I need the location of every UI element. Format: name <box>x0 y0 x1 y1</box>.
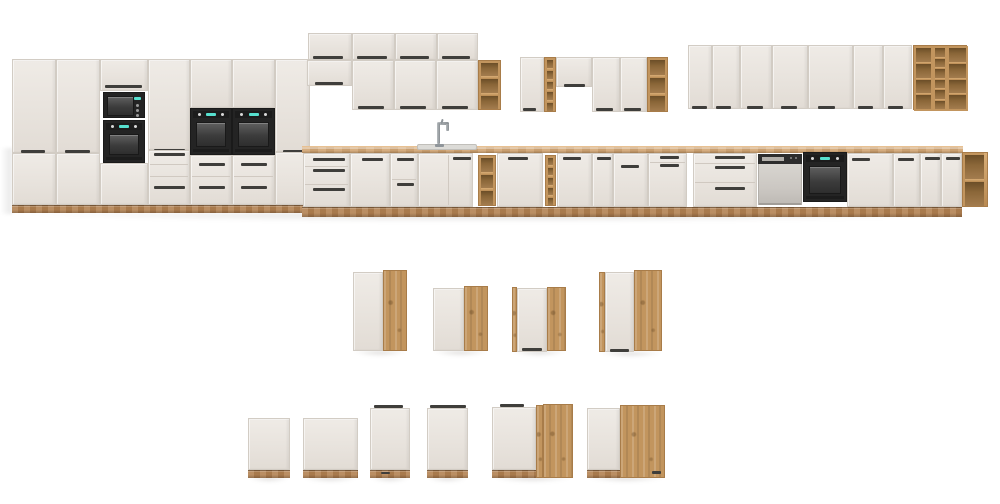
dishwasher-front-45-foot <box>381 472 390 474</box>
wall-oven-left-knob-right <box>221 113 224 116</box>
corner-wall-cabinet-3-door-handle-1 <box>522 348 542 351</box>
dishwasher-kick <box>759 203 801 205</box>
wall-cabinet-tall-door-3 <box>740 45 772 109</box>
wall-open-shelf-2-cell-1 <box>650 60 665 75</box>
wall-wine-rack-col1-cell-4 <box>916 95 931 109</box>
base-door-3-handle-1 <box>563 157 581 160</box>
base-door-4 <box>592 153 613 207</box>
built-in-oven-door-window <box>809 166 841 194</box>
wall-wine-rack-col1-cell-2 <box>916 64 931 78</box>
wall-cabinet-tall-door-1-handle-1 <box>692 106 707 109</box>
wall-cabinet-top-row-door-2 <box>352 33 395 60</box>
oven-tower-built-in-oven <box>103 120 145 163</box>
corner-wall-cabinet-4-door-handle-1 <box>610 349 629 352</box>
base-end-open-shelf-cell-1 <box>965 155 985 179</box>
tall-cabinet-3-upper-door <box>275 59 310 152</box>
built-in-oven-knob-left <box>811 157 814 160</box>
oven-tower-built-in-oven-control-strip <box>106 123 142 130</box>
built-in-oven <box>803 152 847 202</box>
oven-tower-built-in-oven-bottom-rail <box>106 157 142 160</box>
oven-tower-bottom-door <box>100 163 148 205</box>
wall-cabinet-door-2 <box>394 60 436 110</box>
built-in-microwave-window <box>107 96 134 116</box>
oven-tower-built-in-oven-knob-left <box>111 125 114 128</box>
base-drawer-unit-1-divider-2 <box>305 184 348 185</box>
wall-wine-rack-col2-cell-5 <box>935 90 945 99</box>
kitchen-countertop <box>302 146 963 153</box>
sink-base-cabinet-handle-1 <box>453 157 471 160</box>
wall-oven-right-control-strip <box>235 111 272 118</box>
base-door-6-handle-1 <box>852 158 870 161</box>
wall-oven-left-knob-left <box>198 113 201 116</box>
pantry-drawer-stack-handle-1 <box>154 153 185 156</box>
wall-open-shelf-1-cell-1 <box>481 63 498 76</box>
dishwasher-control-panel <box>758 154 802 164</box>
wall-cabinet-top-row-door-1 <box>308 33 352 60</box>
base-drawer-unit-1-handle-3 <box>313 188 345 191</box>
pantry-upper-door <box>148 59 190 150</box>
wall-open-shelf-1-cell-3 <box>481 96 498 109</box>
built-in-microwave-display <box>134 97 141 100</box>
base-door-4-handle-1 <box>597 157 611 160</box>
base-door-8 <box>920 153 941 207</box>
wall-wine-rack-col2-cell-4 <box>935 80 945 89</box>
wall-wine-rack-col1-cell-1 <box>916 48 931 62</box>
wall-wine-rack-col2-cell-2 <box>935 59 945 68</box>
wall-oven-left-door-window <box>196 122 226 147</box>
corner-wall-cabinet-1-side-panel <box>383 270 407 351</box>
tall-cabinet-2-lower-door <box>56 153 100 205</box>
kitchen-faucet <box>432 119 450 148</box>
kitchen-faucet-tip <box>446 124 449 131</box>
wall-oven-right <box>232 108 275 155</box>
wall-wine-rack-column-3 <box>947 46 968 111</box>
corner-base-cabinet-2-plinth <box>587 470 620 478</box>
base-cabinet-2-plinth <box>303 470 358 478</box>
base-door-3 <box>557 153 592 207</box>
wall-open-shelf-1-cell-2 <box>481 79 498 92</box>
built-in-microwave <box>103 92 145 118</box>
wall-cabinet-door-6-handle-1 <box>624 108 641 111</box>
base-open-shelf-cell-1 <box>481 158 493 172</box>
wall-oven-left-drawers-handle-1 <box>199 163 225 166</box>
base-wine-shelf-cell-4 <box>548 188 553 195</box>
base-door-7-handle-1 <box>898 158 914 161</box>
base-door-6 <box>847 153 893 207</box>
corner-base-cabinet-2-door <box>587 408 620 470</box>
base-drawer-unit-3-handle-1 <box>715 156 745 159</box>
base-door-5-handle-1 <box>621 165 639 168</box>
tall-cabinet-2-upper-door <box>56 59 100 153</box>
wall-oven-left <box>190 108 232 155</box>
wall-oven-right-upper-door <box>232 59 275 108</box>
wall-cabinet-top-row-door-4 <box>437 33 478 60</box>
built-in-oven-bottom-rail <box>806 196 844 199</box>
base-drawer-unit-3-divider-2 <box>695 182 755 183</box>
wall-open-shelf-2-cell-2 <box>650 78 665 93</box>
wall-wine-rack-col3-cell-1 <box>949 48 966 62</box>
wall-oven-right-knob-right <box>264 113 267 116</box>
built-in-microwave-button-2 <box>136 109 139 112</box>
base-door-7 <box>893 153 920 207</box>
base-end-open-shelf <box>962 152 988 207</box>
base-drawer-unit-3-handle-2 <box>715 166 745 169</box>
base-open-shelf-cell-2 <box>481 175 493 189</box>
oven-tower-top-door-handle-1 <box>105 85 142 88</box>
wall-oven-right-bottom-rail <box>235 149 272 152</box>
base-door-1-handle-1 <box>362 158 383 161</box>
shadow-corner-wall-2 <box>433 351 488 357</box>
built-in-oven-knob-right <box>836 157 839 160</box>
base-drawer-unit-2-handle-2 <box>397 183 414 186</box>
wall-oven-right-door-window <box>238 122 269 147</box>
wall-oven-right-display <box>249 113 259 116</box>
base-door-9-handle-1 <box>946 157 960 160</box>
dishwasher-front-60-plinth <box>427 470 468 478</box>
base-door-8-handle-1 <box>925 157 940 160</box>
wall-cabinet-tall-door-6-handle-1 <box>858 106 873 109</box>
built-in-microwave-button-3 <box>136 114 139 117</box>
oven-tower-built-in-oven-door-window <box>109 134 139 155</box>
wall-oven-left-upper-door <box>190 59 232 108</box>
corner-base-cabinet-1-door <box>492 407 536 470</box>
base-drawer-door-unit-handle-1 <box>660 156 679 159</box>
oven-tower-built-in-oven-knob-right <box>134 125 137 128</box>
shadow-corner-wall-1 <box>353 351 407 357</box>
tall-cabinet-1-upper-door <box>12 59 56 153</box>
base-door-2 <box>497 153 543 207</box>
base-drawer-unit-2-handle-1 <box>397 158 414 161</box>
wall-wine-shelf-cell-5 <box>547 103 553 111</box>
dishwasher <box>757 153 803 205</box>
base-drawer-unit-1-divider-1 <box>305 166 348 167</box>
wall-cabinet-tall-door-2 <box>712 45 740 109</box>
base-drawer-unit-3-handle-3 <box>715 187 745 190</box>
wall-oven-right-drawers-handle-1 <box>241 163 267 166</box>
kitchen-faucet-base <box>435 144 444 147</box>
base-drawer-unit-1-handle-2 <box>313 169 345 172</box>
kitchen-faucet-pipe <box>437 123 440 144</box>
wall-cabinet-door-1-handle-1 <box>358 106 384 109</box>
base-drawer-unit-1-handle-1 <box>313 158 345 161</box>
base-end-open-shelf-cell-2 <box>965 182 985 206</box>
corner-wall-cabinet-2-side-panel <box>464 286 488 351</box>
base-drawer-unit-3 <box>693 153 757 207</box>
wall-cabinet-door-5 <box>592 57 620 112</box>
wall-oven-right-knob-left <box>240 113 243 116</box>
base-wine-shelf-cell-5 <box>548 198 553 205</box>
wall-wine-rack <box>913 45 967 110</box>
corner-wall-cabinet-3-door <box>517 288 547 352</box>
corner-base-cabinet-2-side-panel <box>620 405 665 478</box>
wall-wine-rack-col3-cell-4 <box>949 95 966 109</box>
base-door-5 <box>613 153 648 207</box>
wall-cabinet-tall-door-1 <box>688 45 712 109</box>
wall-cabinet-short-door-1-handle-1 <box>315 82 343 85</box>
wall-cabinet-tall-door-5-handle-1 <box>818 106 835 109</box>
base-cabinet-2-door <box>303 418 358 470</box>
wall-wine-rack-col2-cell-3 <box>935 69 945 78</box>
wall-oven-left-drawers-divider-1 <box>192 176 230 177</box>
corner-wall-cabinet-3-side-panel <box>547 287 566 351</box>
wall-wine-rack-col1-cell-3 <box>916 80 931 94</box>
base-wine-shelf <box>545 155 556 206</box>
kitchen-cabinet-set-image <box>0 0 1000 504</box>
wall-cabinet-top-row-door-3-handle-1 <box>400 56 429 59</box>
wall-wine-rack-col2-cell-6 <box>935 101 945 110</box>
wall-cabinet-top-row-door-1-handle-1 <box>313 56 343 59</box>
wall-cabinet-door-6 <box>620 57 647 112</box>
corner-wall-cabinet-4-side-panel <box>634 270 662 351</box>
wall-oven-right-drawers <box>232 155 275 205</box>
corner-wall-cabinet-4-door <box>605 272 634 352</box>
wall-wine-rack-col3-cell-3 <box>949 80 966 94</box>
wall-cabinet-tall-door-7-handle-1 <box>888 106 903 109</box>
wall-cabinet-top-row-door-4-handle-1 <box>442 56 470 59</box>
shadow-corner-wall-4 <box>599 352 662 358</box>
wall-cabinet-top-row-door-3 <box>395 33 437 60</box>
wall-cabinet-door-1 <box>352 60 394 110</box>
wall-wine-shelf <box>544 57 556 112</box>
wall-cabinet-door-4 <box>520 57 544 112</box>
built-in-microwave-button-1 <box>136 104 139 107</box>
tall-section-plinth <box>12 205 310 213</box>
base-drawer-door-unit-handle-2 <box>660 164 679 167</box>
corner-wall-cabinet-1-door <box>353 272 383 351</box>
wall-oven-right-drawers-divider-1 <box>234 176 273 177</box>
base-door-2-handle-1 <box>508 157 528 160</box>
built-in-oven-control-strip <box>806 155 844 162</box>
dishwasher-front-45-door <box>370 408 410 470</box>
tall-cabinet-1-lower-door <box>12 153 56 205</box>
wall-cabinet-tall-door-3-handle-1 <box>747 106 763 109</box>
wall-wine-shelf-cell-2 <box>547 71 553 79</box>
corner-base-cabinet-1-side-panel <box>543 404 573 478</box>
base-plinth <box>302 207 962 217</box>
wall-oven-left-bottom-rail <box>193 149 229 152</box>
base-wine-shelf-cell-2 <box>548 168 553 175</box>
wall-cabinet-short-door-2 <box>556 57 592 87</box>
base-open-shelf-cell-3 <box>481 191 493 205</box>
sink-base-cabinet <box>418 153 473 207</box>
corner-base-cabinet-1-stile <box>536 405 543 478</box>
dishwasher-buttons <box>762 157 784 161</box>
wall-cabinet-door-3 <box>436 60 478 110</box>
base-door-9 <box>941 153 962 207</box>
wall-cabinet-door-3-handle-1 <box>442 106 468 109</box>
wall-cabinet-short-door-1 <box>307 60 352 86</box>
pantry-drawer-stack <box>148 150 190 205</box>
base-drawer-unit-2 <box>390 153 418 207</box>
base-end-open-shelf-edge <box>984 153 987 206</box>
wall-wine-rack-column-2 <box>933 46 947 111</box>
wall-oven-left-display <box>206 113 216 116</box>
wall-cabinet-door-2-handle-1 <box>400 106 426 109</box>
wall-open-shelf-2-cell-3 <box>650 96 665 111</box>
pantry-drawer-stack-divider-1 <box>150 164 188 165</box>
wall-oven-right-drawers-handle-2 <box>241 186 267 189</box>
wall-oven-left-drawers-handle-2 <box>199 186 225 189</box>
pantry-drawer-stack-handle-2 <box>154 186 185 189</box>
wall-oven-left-drawers <box>190 155 232 205</box>
wall-cabinet-tall-door-2-handle-1 <box>716 106 731 109</box>
dishwasher-indicator-1 <box>790 157 792 159</box>
dishwasher-front-panel <box>758 164 802 205</box>
base-open-shelf <box>478 155 496 206</box>
base-drawer-unit-3-divider-1 <box>695 163 755 164</box>
dishwasher-front-60-door <box>427 408 468 470</box>
oven-tower-top-door <box>100 59 148 91</box>
base-drawer-door-unit <box>648 153 687 207</box>
base-drawer-unit-1 <box>303 153 350 207</box>
oven-tower-built-in-oven-display <box>119 125 129 128</box>
base-wine-shelf-cell-1 <box>548 158 553 165</box>
wall-open-shelf-2 <box>647 57 668 112</box>
base-door-1 <box>350 153 390 207</box>
corner-base-cabinet-1-plinth <box>492 470 536 478</box>
wall-wine-rack-col3-cell-2 <box>949 64 966 78</box>
shadow-left-wall <box>0 148 12 214</box>
base-wine-shelf-cell-3 <box>548 178 553 185</box>
base-cabinet-1-plinth <box>248 470 290 478</box>
wall-oven-left-control-strip <box>193 111 229 118</box>
wall-cabinet-tall-door-4 <box>772 45 808 109</box>
wall-cabinet-short-door-2-handle-1 <box>564 84 585 87</box>
base-drawer-unit-2-divider-1 <box>392 179 416 180</box>
wall-wine-shelf-cell-4 <box>547 92 553 100</box>
dishwasher-indicator-2 <box>795 157 797 159</box>
wall-open-shelf-1 <box>478 60 501 110</box>
wall-cabinet-top-row-door-2-handle-1 <box>357 56 387 59</box>
pantry-drawer-stack-divider-2 <box>150 176 188 177</box>
built-in-oven-display <box>820 157 830 160</box>
wall-wine-shelf-cell-3 <box>547 82 553 90</box>
base-cabinet-1-door <box>248 418 290 470</box>
dishwasher-front-45-plinth <box>370 470 410 478</box>
wall-cabinet-tall-door-7 <box>883 45 912 109</box>
base-drawer-door-unit-divider-1 <box>650 162 685 163</box>
wall-cabinet-door-4-handle-1 <box>523 108 536 111</box>
wall-wine-rack-column-1 <box>914 46 933 111</box>
wall-cabinet-tall-door-5 <box>808 45 853 109</box>
wall-cabinet-tall-door-4-handle-1 <box>781 106 797 109</box>
wall-wine-shelf-cell-1 <box>547 60 553 68</box>
corner-wall-cabinet-2-door <box>433 288 464 351</box>
wall-wine-rack-col2-cell-1 <box>935 48 945 57</box>
wall-cabinet-tall-door-6 <box>853 45 883 109</box>
corner-base-cabinet-2-handle <box>652 471 661 474</box>
sink-base-cabinet-door-gap-1 <box>448 155 449 205</box>
wall-cabinet-door-5-handle-1 <box>596 108 613 111</box>
